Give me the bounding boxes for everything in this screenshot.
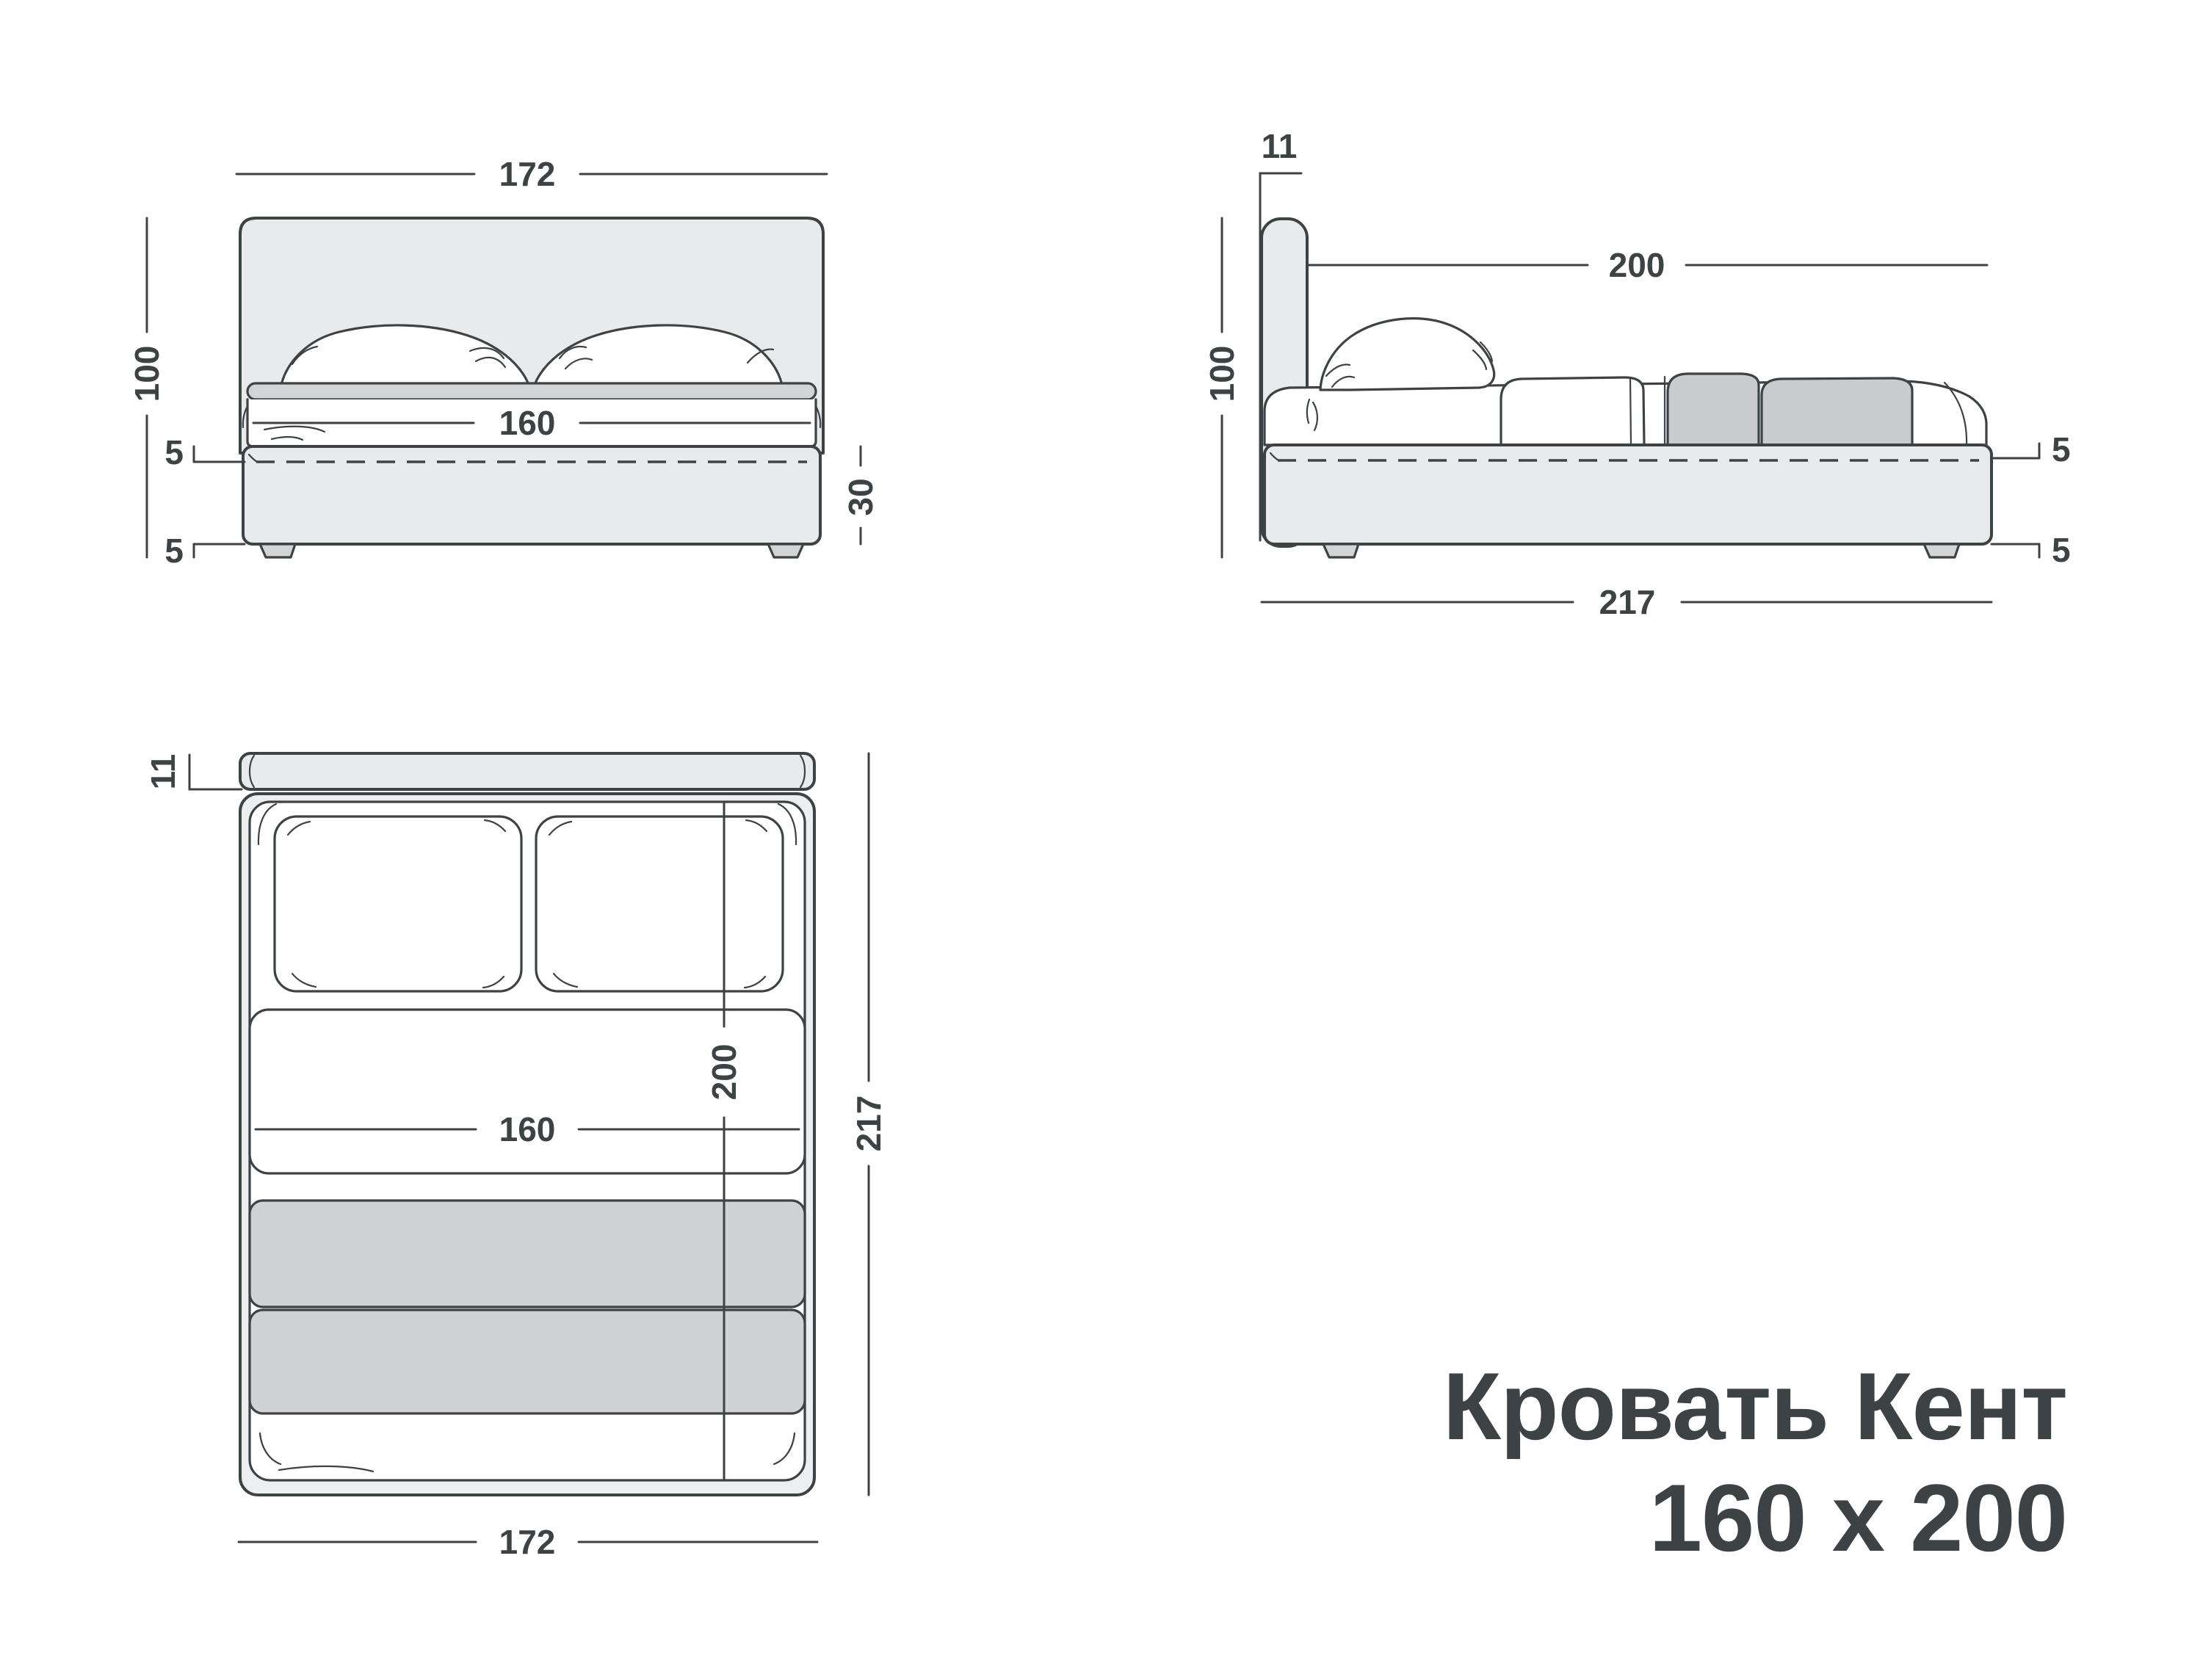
side-duvet-fold: [1630, 378, 1631, 445]
drawing-sheet: 172 100 160 5 5 30: [0, 0, 2203, 1680]
top-dim-mattress-length-label: 200: [705, 1044, 743, 1101]
side-dim-headboard-label: 11: [1262, 127, 1298, 165]
top-dim-total-width-label: 172: [499, 1523, 556, 1561]
bed-technical-drawing: 172 100 160 5 5 30: [0, 0, 2203, 1680]
side-dim-seam: 5: [1992, 430, 2071, 468]
side-dim-leg-label: 5: [2052, 531, 2071, 569]
side-view: 11 200 100 5 5 217: [1203, 127, 2071, 621]
side-dim-total-length-label: 217: [1599, 583, 1656, 621]
front-dim-base-height: 30: [842, 446, 880, 544]
top-view: 11 160 200 217 172: [144, 753, 888, 1561]
side-dim-height: 100: [1203, 218, 1241, 557]
product-title-line2: 160 x 200: [1649, 1464, 2067, 1571]
side-leg-right: [1924, 544, 1959, 557]
top-dim-total-width: 172: [239, 1523, 817, 1561]
top-dim-mattress-width-label: 160: [499, 1110, 556, 1148]
top-blanket-band-2: [250, 1310, 805, 1413]
top-pillow-left: [275, 817, 521, 991]
top-headboard-bar: [240, 753, 814, 789]
side-pillow: [1320, 319, 1494, 390]
side-dim-total-length: 217: [1262, 583, 1992, 621]
front-dim-base-height-label: 30: [842, 478, 880, 515]
top-dim-total-length: 217: [850, 753, 888, 1495]
side-dim-seam-label: 5: [2052, 430, 2071, 468]
front-dim-width-label: 172: [499, 155, 556, 193]
front-dim-mattress-width-label: 160: [499, 404, 556, 442]
front-dim-leg: 5: [164, 532, 245, 570]
top-dim-headboard: 11: [144, 754, 242, 790]
top-dim-total-length-label: 217: [850, 1096, 888, 1152]
front-dim-leg-label: 5: [164, 532, 184, 570]
front-dim-height: 100: [128, 218, 166, 557]
front-view: 172 100 160 5 5 30: [128, 155, 880, 570]
side-blanket-2: [1762, 378, 1912, 445]
side-blanket-1: [1668, 374, 1759, 445]
front-mattress-piping: [247, 383, 816, 399]
side-duvet: [1501, 377, 1644, 445]
front-dim-seam-label: 5: [164, 433, 184, 471]
side-dim-leg: 5: [1992, 531, 2071, 569]
side-dim-height-label: 100: [1203, 346, 1241, 402]
side-dim-mattress-length-label: 200: [1609, 246, 1665, 284]
front-leg-left: [260, 544, 295, 557]
product-title-line1: Кровать Кент: [1443, 1353, 2067, 1460]
front-dim-width: 172: [236, 155, 827, 193]
front-dim-height-label: 100: [128, 346, 166, 402]
top-blanket-band-1: [250, 1201, 805, 1307]
front-dim-seam: 5: [164, 433, 245, 471]
product-title: Кровать Кент 160 x 200: [1443, 1353, 2067, 1571]
top-pillow-right: [536, 817, 783, 991]
side-dim-mattress-length: 200: [1309, 246, 1987, 284]
front-leg-right: [768, 544, 803, 557]
side-leg-left: [1323, 544, 1359, 557]
top-dim-headboard-label: 11: [144, 754, 182, 790]
